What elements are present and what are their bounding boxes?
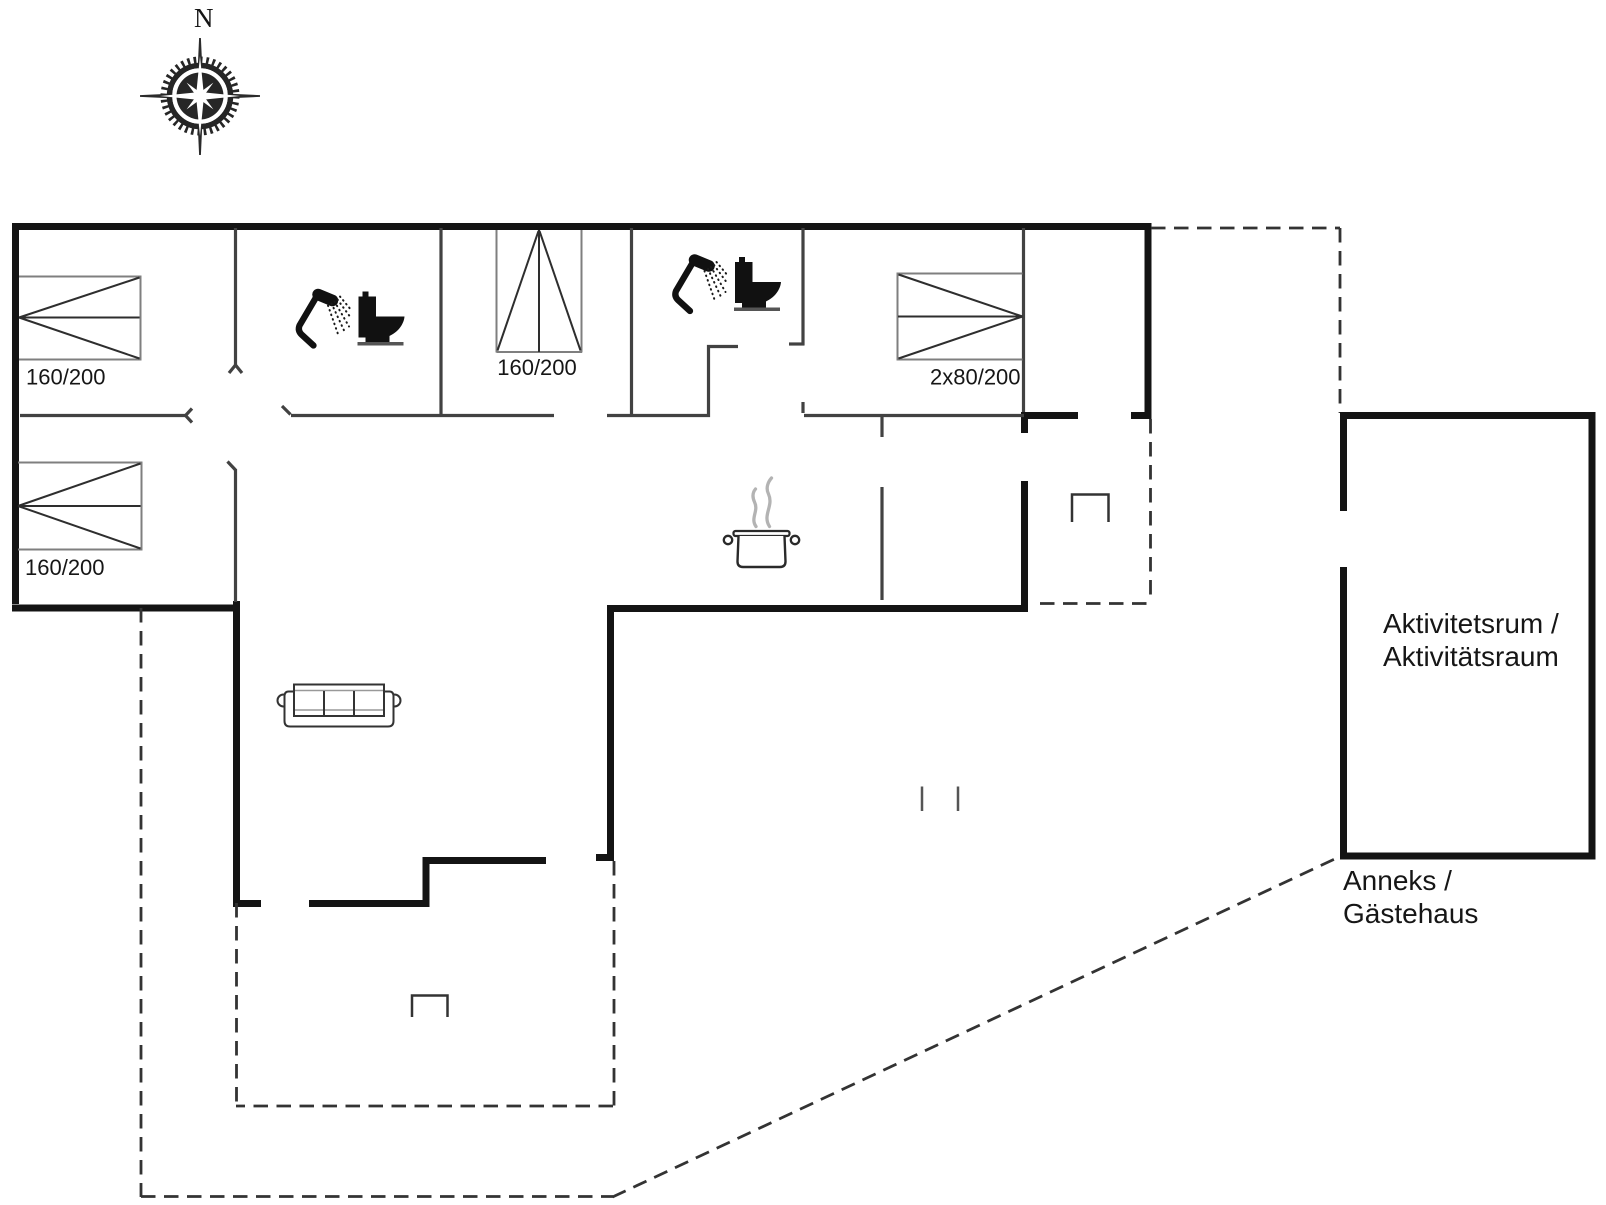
svg-text:160/200: 160/200 [497,355,577,380]
svg-text:Anneks /: Anneks / [1343,865,1452,896]
svg-text:N: N [194,3,214,33]
svg-text:Gästehaus: Gästehaus [1343,898,1478,929]
svg-text:Aktivitetsrum /: Aktivitetsrum / [1383,608,1559,639]
svg-text:160/200: 160/200 [25,555,105,580]
svg-text:160/200: 160/200 [26,365,106,390]
svg-text:Aktivitätsraum: Aktivitätsraum [1383,641,1559,672]
svg-text:2x80/200: 2x80/200 [930,365,1021,390]
